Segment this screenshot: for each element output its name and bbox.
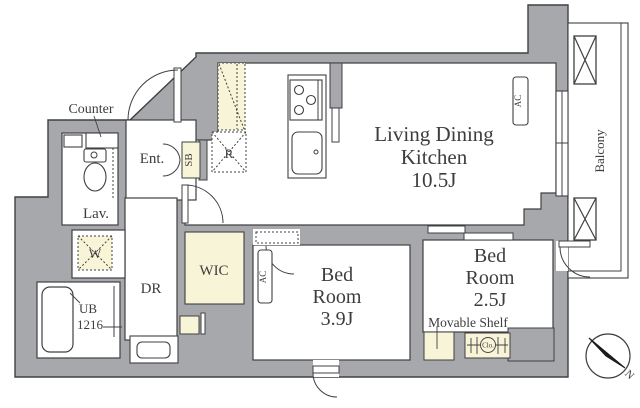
compass: N [586,334,636,382]
washer-label: W [89,246,102,261]
svg-text:Room: Room [313,286,362,308]
label-ub-1: UB [79,301,97,316]
svg-text:Living Dining: Living Dining [374,122,494,146]
label-dressing-room: DR [141,281,162,297]
floor-plan-drawing: Balcony R [0,0,640,408]
movable-shelf [424,327,454,360]
refrigerator-box: R [212,132,246,172]
door-bedroom-3-9-south [313,360,339,397]
bedroom-2-5-corner-wall [508,328,554,361]
label-movable-shelf: Movable Shelf [428,315,508,330]
sink-icon [292,132,322,174]
toilet-shelf [64,135,82,147]
toilet-icon [84,149,106,191]
label-ub-2: 1216 [77,317,104,332]
balcony-label: Balcony [592,129,607,173]
ac-unit-bedroom: AC [258,250,272,303]
toilet-counter [86,133,118,148]
kitchen-counter [288,75,326,178]
svg-text:10.5J: 10.5J [412,168,457,192]
refrigerator-label: R [225,146,234,161]
ac-bedroom-label: AC [258,271,268,284]
ac-ldk-label: AC [513,95,523,108]
floor-plan-page: Balcony R [0,0,640,408]
balcony: Balcony [568,23,628,278]
label-lavatory: Lav. [83,206,109,222]
svg-text:Kitchen: Kitchen [401,145,468,169]
label-counter: Counter [68,102,113,117]
shoe-box: SB [182,140,207,180]
washer-box: W [78,236,112,270]
svg-text:Bed: Bed [474,245,506,267]
bathtub-icon [42,287,73,352]
closet-label: Clo. [482,342,494,350]
closet-clo: Clo. [465,333,510,358]
room-corridor-dr-floor [125,198,177,340]
svg-text:Room: Room [466,267,515,289]
svg-text:3.9J: 3.9J [321,308,354,330]
stove-icon [290,80,322,120]
washbasin [130,336,178,363]
ac-unit-ldk: AC [513,77,528,125]
window-ldk-balcony [556,91,568,196]
label-wic: WIC [199,263,228,279]
svg-text:Bed: Bed [321,264,353,286]
svg-text:2.5J: 2.5J [474,289,507,311]
kitchen-cupboard [218,63,245,130]
label-entrance: Ent. [140,151,165,167]
shoe-box-label: SB [183,153,195,166]
wic-door-panel [201,313,205,334]
wic-side-cabinet [180,316,199,334]
